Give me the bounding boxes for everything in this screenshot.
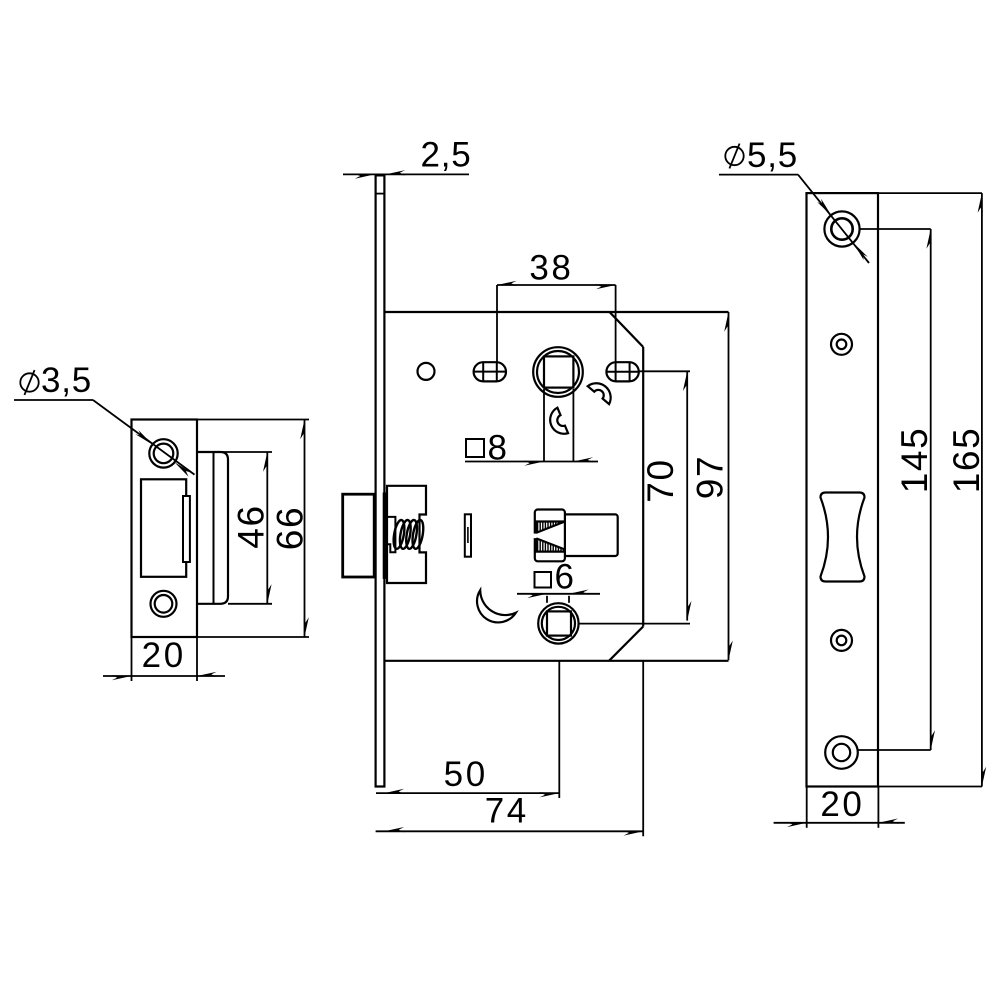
svg-text:165: 165	[946, 427, 987, 494]
svg-text:70: 70	[640, 458, 681, 502]
svg-text:2,5: 2,5	[420, 136, 471, 175]
svg-text:5,5: 5,5	[747, 136, 798, 175]
svg-text:8: 8	[487, 429, 509, 468]
svg-text:20: 20	[820, 785, 864, 824]
svg-text:20: 20	[142, 636, 186, 675]
svg-text:3,5: 3,5	[41, 361, 92, 400]
svg-text:74: 74	[485, 792, 529, 831]
svg-text:46: 46	[231, 504, 272, 548]
svg-text:66: 66	[270, 506, 311, 550]
svg-text:38: 38	[529, 249, 573, 288]
svg-text:145: 145	[894, 427, 935, 494]
svg-text:6: 6	[554, 558, 576, 597]
svg-text:50: 50	[444, 755, 488, 794]
svg-text:97: 97	[690, 455, 731, 499]
